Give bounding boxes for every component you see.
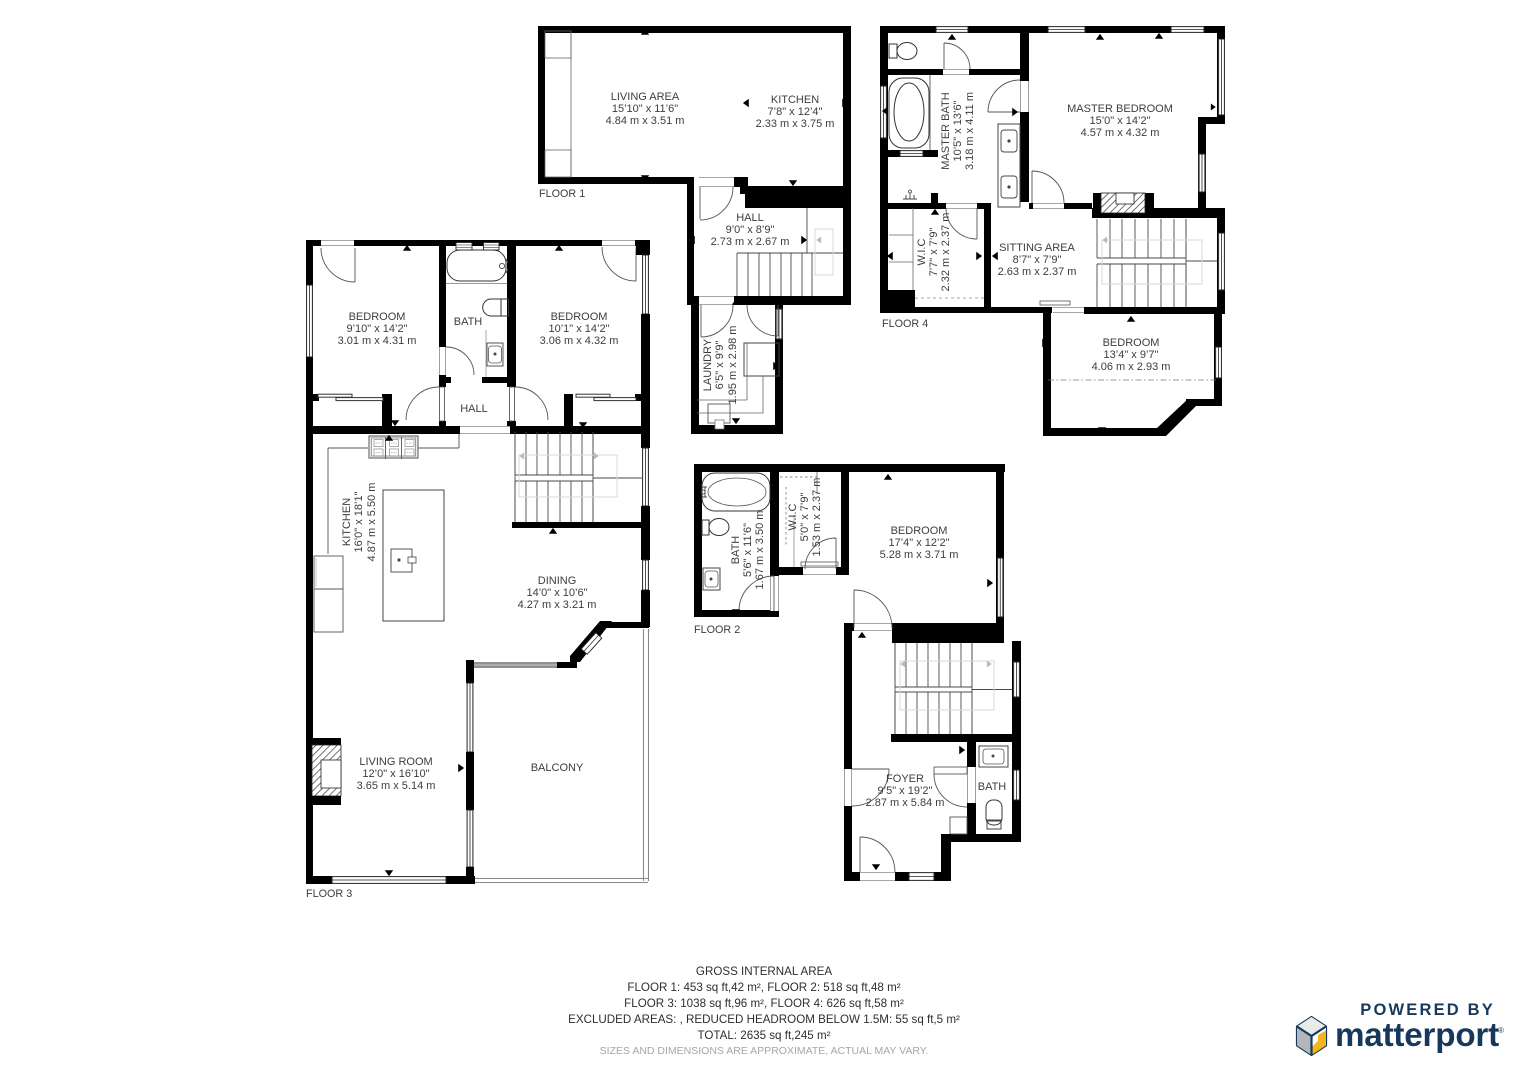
svg-text:BATH: BATH <box>454 316 483 328</box>
svg-text:2.73 m x 2.67 m: 2.73 m x 2.67 m <box>711 236 790 248</box>
svg-text:1.67 m x 3.50 m: 1.67 m x 3.50 m <box>754 511 766 590</box>
svg-text:3.65 m x 5.14 m: 3.65 m x 5.14 m <box>357 780 436 792</box>
svg-text:2.63 m x 2.37 m: 2.63 m x 2.37 m <box>998 266 1077 278</box>
svg-text:BALCONY: BALCONY <box>531 762 584 774</box>
svg-text:2.87 m x 5.84 m: 2.87 m x 5.84 m <box>866 797 945 809</box>
svg-text:KITCHEN: KITCHEN <box>341 498 353 546</box>
svg-text:16’0" x 18’1": 16’0" x 18’1" <box>353 491 365 552</box>
svg-text:FLOOR 3: 1038 sq ft,96 m², FLO: FLOOR 3: 1038 sq ft,96 m², FLOOR 4: 626 … <box>624 997 904 1010</box>
svg-text:BATH: BATH <box>978 781 1007 793</box>
svg-text:BEDROOM: BEDROOM <box>349 311 406 323</box>
svg-text:7’7" x 7’9": 7’7" x 7’9" <box>928 228 940 277</box>
svg-text:FLOOR 1: 453 sq ft,42 m², FLOO: FLOOR 1: 453 sq ft,42 m², FLOOR 2: 518 s… <box>627 981 900 994</box>
svg-text:5’6" x 11’6": 5’6" x 11’6" <box>742 523 754 577</box>
svg-text:4.87 m x 5.50 m: 4.87 m x 5.50 m <box>366 483 378 562</box>
svg-text:6’5" x 9’9": 6’5" x 9’9" <box>714 341 726 390</box>
svg-text:FLOOR 1: FLOOR 1 <box>539 188 585 200</box>
svg-text:BEDROOM: BEDROOM <box>1103 337 1160 349</box>
svg-text:15’10" x 11’6": 15’10" x 11’6" <box>612 103 678 115</box>
svg-text:SITTING AREA: SITTING AREA <box>999 242 1075 254</box>
svg-text:4.27 m x 3.21 m: 4.27 m x 3.21 m <box>518 599 597 611</box>
svg-text:10’5" x 13’6": 10’5" x 13’6" <box>952 100 964 161</box>
svg-text:FLOOR 2: FLOOR 2 <box>694 624 740 636</box>
svg-text:4.06 m x 2.93 m: 4.06 m x 2.93 m <box>1092 361 1171 373</box>
svg-text:MASTER BEDROOM: MASTER BEDROOM <box>1067 103 1173 115</box>
svg-text:BEDROOM: BEDROOM <box>891 525 948 537</box>
svg-text:17’4" x 12’2": 17’4" x 12’2" <box>888 537 949 549</box>
svg-text:EXCLUDED AREAS: , REDUCED HEAD: EXCLUDED AREAS: , REDUCED HEADROOM BELOW… <box>568 1013 960 1026</box>
svg-text:DINING: DINING <box>538 575 577 587</box>
svg-text:3.18 m x 4.11 m: 3.18 m x 4.11 m <box>964 92 976 170</box>
svg-text:FOYER: FOYER <box>886 773 924 785</box>
svg-text:9’10" x 14’2": 9’10" x 14’2" <box>346 323 407 335</box>
svg-text:2.33 m x 3.75 m: 2.33 m x 3.75 m <box>756 118 835 130</box>
svg-text:2.32 m x 2.37 m: 2.32 m x 2.37 m <box>940 213 952 292</box>
svg-text:W.I.C: W.I.C <box>787 504 799 531</box>
svg-text:5’0" x 7’9": 5’0" x 7’9" <box>799 493 811 542</box>
svg-text:SIZES AND DIMENSIONS ARE APPRO: SIZES AND DIMENSIONS ARE APPROXIMATE, AC… <box>600 1045 929 1057</box>
svg-text:FLOOR 3: FLOOR 3 <box>306 888 352 900</box>
svg-text:LIVING ROOM: LIVING ROOM <box>359 756 432 768</box>
svg-text:FLOOR 4: FLOOR 4 <box>882 318 928 330</box>
svg-text:3.06 m x 4.32 m: 3.06 m x 4.32 m <box>540 335 619 347</box>
svg-text:4.57 m x 4.32 m: 4.57 m x 4.32 m <box>1081 127 1160 139</box>
svg-text:GROSS INTERNAL AREA: GROSS INTERNAL AREA <box>696 965 832 978</box>
svg-text:10’1" x 14’2": 10’1" x 14’2" <box>548 323 609 335</box>
svg-text:LIVING AREA: LIVING AREA <box>611 91 680 103</box>
svg-text:3.01 m x 4.31 m: 3.01 m x 4.31 m <box>338 335 417 347</box>
svg-text:HALL: HALL <box>460 403 488 415</box>
svg-text:9’0" x 8’9": 9’0" x 8’9" <box>726 224 775 236</box>
svg-text:LAUNDRY: LAUNDRY <box>702 338 714 391</box>
svg-text:HALL: HALL <box>736 212 764 224</box>
svg-text:®: ® <box>1498 1026 1504 1035</box>
svg-text:14’0" x 10’6": 14’0" x 10’6" <box>526 587 587 599</box>
svg-text:W.I.C: W.I.C <box>916 239 928 266</box>
svg-text:12’0" x 16’10": 12’0" x 16’10" <box>362 768 429 780</box>
svg-text:1.95 m x 2.98 m: 1.95 m x 2.98 m <box>727 326 739 405</box>
svg-text:8’7" x 7’9": 8’7" x 7’9" <box>1013 254 1062 266</box>
svg-text:5.28 m x 3.71 m: 5.28 m x 3.71 m <box>880 549 959 561</box>
svg-text:4.84 m x 3.51 m: 4.84 m x 3.51 m <box>606 115 685 127</box>
svg-text:BEDROOM: BEDROOM <box>551 311 608 323</box>
svg-text:MASTER BATH: MASTER BATH <box>940 92 952 169</box>
svg-text:TOTAL: 2635 sq ft,245 m²: TOTAL: 2635 sq ft,245 m² <box>698 1029 831 1042</box>
svg-text:9’5" x 19’2": 9’5" x 19’2" <box>878 785 933 797</box>
svg-text:1.53 m x 2.37 m: 1.53 m x 2.37 m <box>811 478 823 557</box>
svg-text:15’0" x 14’2": 15’0" x 14’2" <box>1089 115 1150 127</box>
svg-text:BATH: BATH <box>730 536 742 565</box>
svg-text:13’4" x 9’7": 13’4" x 9’7" <box>1104 349 1159 361</box>
svg-text:matterport: matterport <box>1335 1017 1499 1054</box>
svg-text:KITCHEN: KITCHEN <box>771 94 819 106</box>
svg-text:7’8" x 12’4": 7’8" x 12’4" <box>768 106 823 118</box>
